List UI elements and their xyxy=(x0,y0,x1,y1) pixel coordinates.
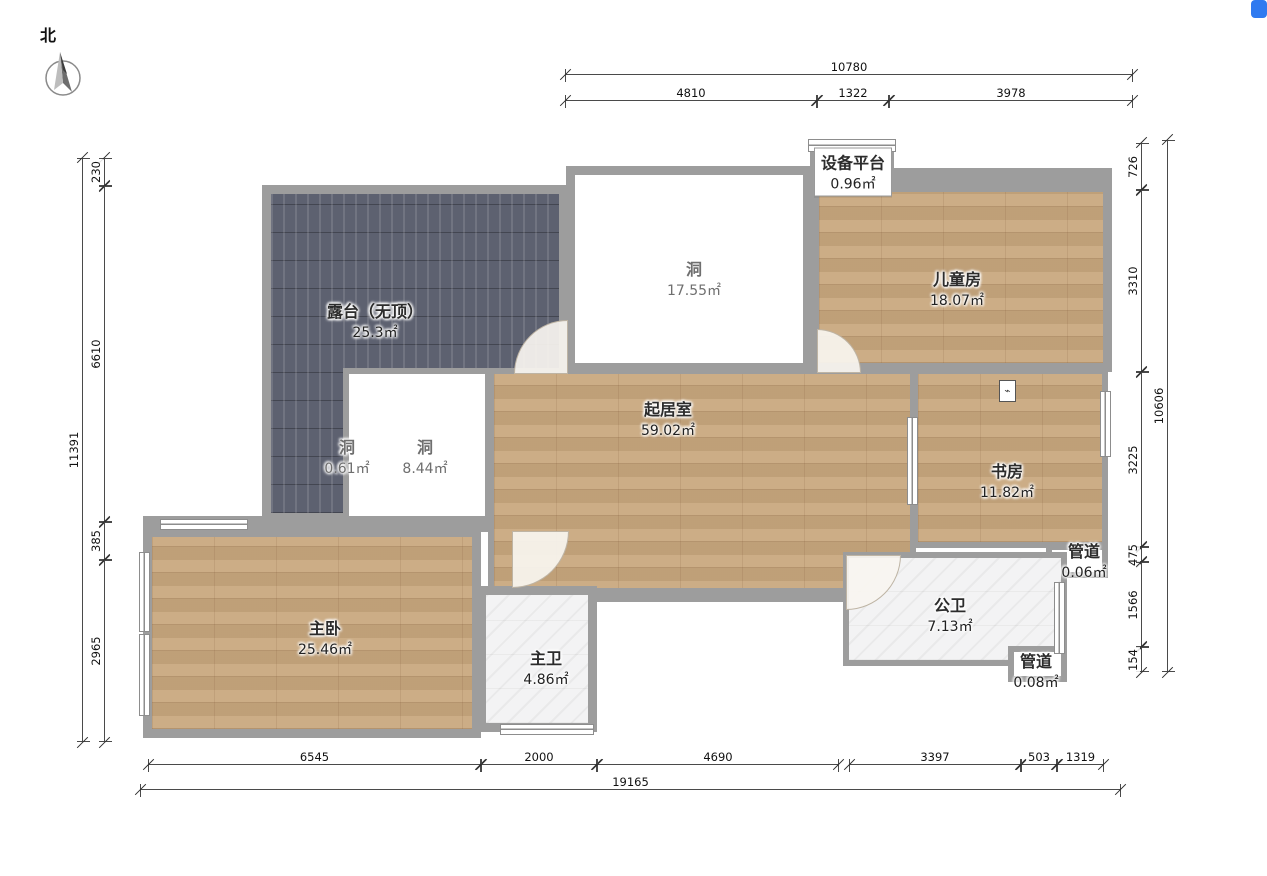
window xyxy=(139,552,150,632)
window xyxy=(160,519,248,530)
dim-bottom-seg-6: 1319 xyxy=(1057,764,1104,765)
label-hole-small: 洞 0.61㎡ xyxy=(324,434,369,478)
dim-right-seg-1: 726 xyxy=(1141,143,1142,190)
north-label: 北 xyxy=(40,22,88,46)
dim-top-total: 10780 xyxy=(565,74,1133,75)
window xyxy=(1100,391,1111,457)
dim-right-seg-5: 1566 xyxy=(1141,562,1142,647)
wall-strip xyxy=(595,588,847,602)
browser-extension-icon[interactable] xyxy=(1251,0,1267,18)
boiler-icon: ⌁ xyxy=(999,380,1016,402)
dim-right-seg-2: 3310 xyxy=(1141,190,1142,372)
dim-left-total: 11391 xyxy=(82,158,83,742)
dim-bottom-seg-4: 3397 xyxy=(849,764,1021,765)
dim-left-seg-2: 6610 xyxy=(104,186,105,522)
label-public-bath: 公卫 7.13㎡ xyxy=(927,592,972,636)
label-equipment-platform: 设备平台 0.96㎡ xyxy=(814,148,892,197)
dim-bottom-seg-1: 6545 xyxy=(148,764,481,765)
window xyxy=(907,417,918,505)
label-study: 书房 11.82㎡ xyxy=(980,458,1034,502)
label-master-bedroom: 主卧 25.46㎡ xyxy=(298,615,352,659)
dim-bottom-seg-3: 4690 xyxy=(597,764,839,765)
label-terrace: 露台（无顶） 25.3㎡ xyxy=(327,298,423,342)
dim-bottom-seg-2: 2000 xyxy=(481,764,597,765)
label-duct-top: 管道 0.06㎡ xyxy=(1061,538,1106,582)
label-kids-room: 儿童房 18.07㎡ xyxy=(930,266,984,310)
dim-right-seg-6: 154 xyxy=(1141,647,1142,672)
window xyxy=(500,724,594,735)
dim-right-total: 10606 xyxy=(1167,140,1168,672)
label-duct-bottom: 管道 0.08㎡ xyxy=(1013,648,1058,692)
north-compass: 北 xyxy=(36,22,88,106)
window xyxy=(1054,582,1065,654)
dim-top-seg-2: 1322 xyxy=(817,100,889,101)
label-living-room: 起居室 59.02㎡ xyxy=(641,396,695,440)
dim-left-seg-1: 230 xyxy=(104,158,105,186)
dim-bottom-total: 19165 xyxy=(140,789,1121,790)
label-hole-mid: 洞 8.44㎡ xyxy=(402,434,447,478)
dim-left-seg-4: 2965 xyxy=(104,560,105,742)
dim-top-seg-3: 3978 xyxy=(889,100,1133,101)
dim-right-seg-3: 3225 xyxy=(1141,372,1142,547)
wall-strip xyxy=(893,168,1112,185)
label-hole-large: 洞 17.55㎡ xyxy=(667,256,721,300)
dim-top-seg-1: 4810 xyxy=(565,100,817,101)
dim-bottom-seg-5: 503 xyxy=(1021,764,1057,765)
dim-left-seg-3: 385 xyxy=(104,522,105,560)
window xyxy=(139,634,150,716)
compass-icon xyxy=(36,46,88,102)
label-master-bath: 主卫 4.86㎡ xyxy=(523,645,568,689)
